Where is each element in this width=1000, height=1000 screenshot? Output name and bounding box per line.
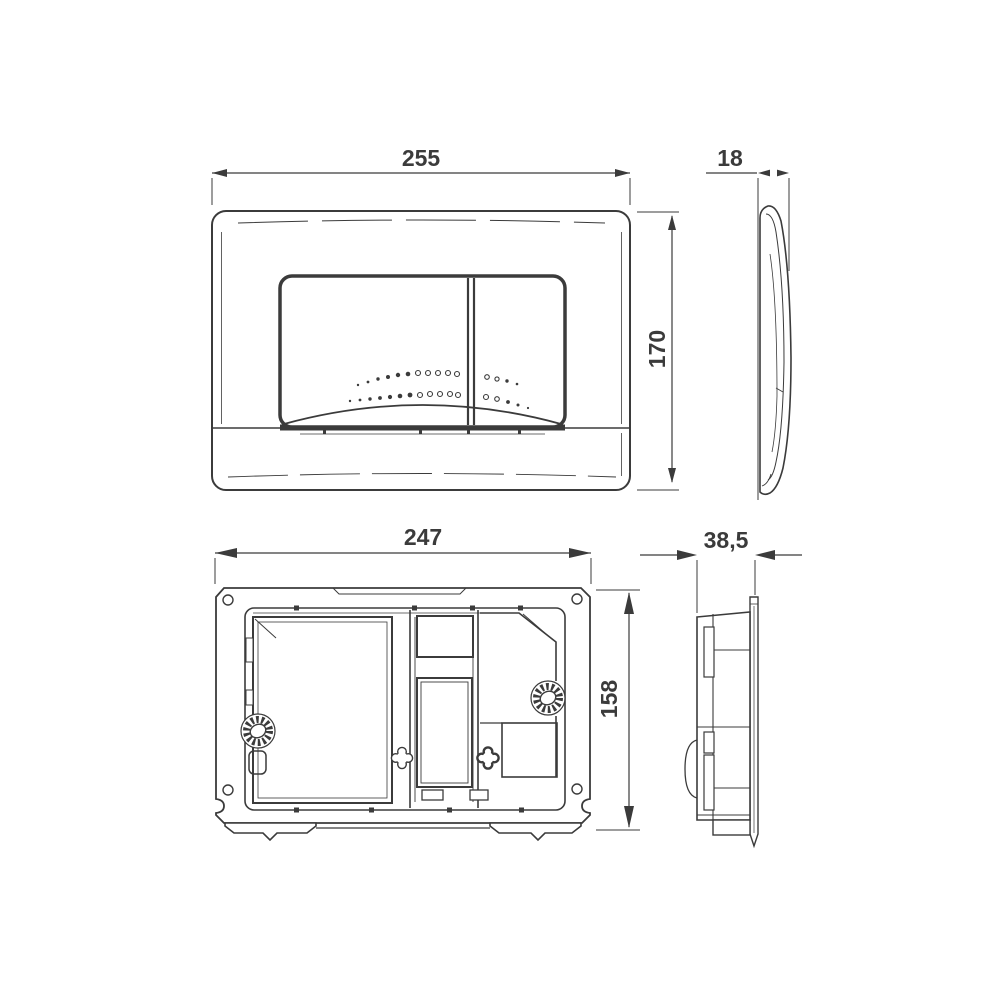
band-tick (518, 430, 521, 434)
corner-hole (223, 595, 233, 605)
perforation-dot (386, 375, 390, 379)
wall-joint-tick (294, 808, 299, 813)
perforation-dot (495, 397, 500, 402)
arrowhead-up (624, 592, 634, 614)
wall-joint-tick (294, 606, 299, 611)
dimension-frame-width: 247 (215, 524, 591, 584)
arrowhead-down (668, 468, 676, 483)
frame-back-view: 247 158 (215, 524, 640, 840)
body-tab (704, 627, 714, 677)
dim-front-width-label: 255 (402, 145, 441, 171)
wall-notch (246, 638, 253, 662)
perforation-dot (426, 371, 431, 376)
arrowhead-right (677, 550, 697, 560)
dim-front-height-label: 170 (644, 330, 670, 368)
perforation-dot (438, 392, 443, 397)
bottom-tab (470, 790, 488, 800)
wall-joint-tick (447, 808, 452, 813)
perforation-dot (398, 394, 403, 399)
dimension-front-width: 255 (212, 145, 630, 205)
arrowhead-down (624, 806, 634, 828)
body-bottom-extension (713, 820, 750, 835)
perforation-dot (446, 371, 451, 376)
perforation-dot (448, 392, 453, 397)
serrated-knob-left (241, 714, 275, 748)
perforation-dot (396, 373, 400, 377)
front-view: 255 170 (212, 145, 679, 490)
band-tick (323, 430, 326, 434)
corner-hole (572, 594, 582, 604)
perforation-dot (359, 399, 362, 402)
corner-hole (572, 784, 582, 794)
perforation-dot (456, 393, 461, 398)
dim-frame-width-label: 247 (404, 524, 442, 550)
perforation-dot (416, 371, 421, 376)
serrated-knob-right (531, 681, 565, 715)
body-tab (704, 755, 714, 810)
arrowhead-left (212, 169, 227, 177)
perforation-dot (455, 372, 460, 377)
band-tick (419, 430, 422, 434)
perforation-dot (505, 379, 508, 382)
arrowhead-right (615, 169, 630, 177)
perforation-dot (517, 404, 520, 407)
arrowhead-up (668, 215, 676, 230)
perforation-dot (495, 377, 499, 381)
arrowhead-right (569, 548, 591, 558)
wall-joint-tick (519, 808, 524, 813)
perforation-dot (485, 375, 490, 380)
plate-profile-outline (760, 206, 791, 494)
frame-foot-left (225, 823, 316, 840)
perforation-dot (428, 392, 433, 397)
arrowhead-left (755, 550, 775, 560)
perforation-dot (367, 381, 370, 384)
perforation-dot (516, 383, 519, 386)
dim-frame-depth-label: 38,5 (704, 527, 749, 553)
perforation-dot (388, 395, 392, 399)
body-tab (704, 732, 714, 753)
perforation-dot (527, 407, 529, 409)
perforation-dot (408, 393, 413, 398)
perforation-dot (418, 393, 423, 398)
technical-drawing-canvas: 255 170 (0, 0, 1000, 1000)
wall-joint-tick (518, 606, 523, 611)
perforation-dot (484, 395, 489, 400)
bottom-tab (422, 790, 443, 800)
wall-joint-tick (412, 606, 417, 611)
dimension-frame-height: 158 (596, 590, 640, 830)
corner-hole (223, 785, 233, 795)
perforation-dot (357, 384, 359, 386)
band-tick (467, 430, 470, 434)
dimension-frame-depth: 38,5 (640, 527, 802, 613)
wall-notch (246, 690, 253, 705)
frame-foot-right (490, 823, 581, 840)
plate-side-view: 18 (706, 145, 791, 500)
dimension-front-height: 170 (637, 212, 679, 490)
wall-joint-tick (470, 606, 475, 611)
perforation-dot (506, 400, 510, 404)
dim-frame-height-label: 158 (596, 680, 622, 719)
arrowhead-right (777, 170, 789, 177)
perforation-dot (436, 371, 441, 376)
perforation-dot (349, 400, 351, 402)
wall-joint-tick (369, 808, 374, 813)
perforation-dot (368, 397, 371, 400)
perforation-dot (406, 372, 411, 377)
arrowhead-left (758, 170, 770, 177)
side-bump (685, 740, 697, 798)
perforation-dot (378, 396, 382, 400)
perforation-dot (376, 377, 379, 380)
arrowhead-left (215, 548, 237, 558)
dim-plate-depth-label: 18 (717, 145, 743, 171)
frame-side-view: 38,5 (640, 527, 802, 846)
